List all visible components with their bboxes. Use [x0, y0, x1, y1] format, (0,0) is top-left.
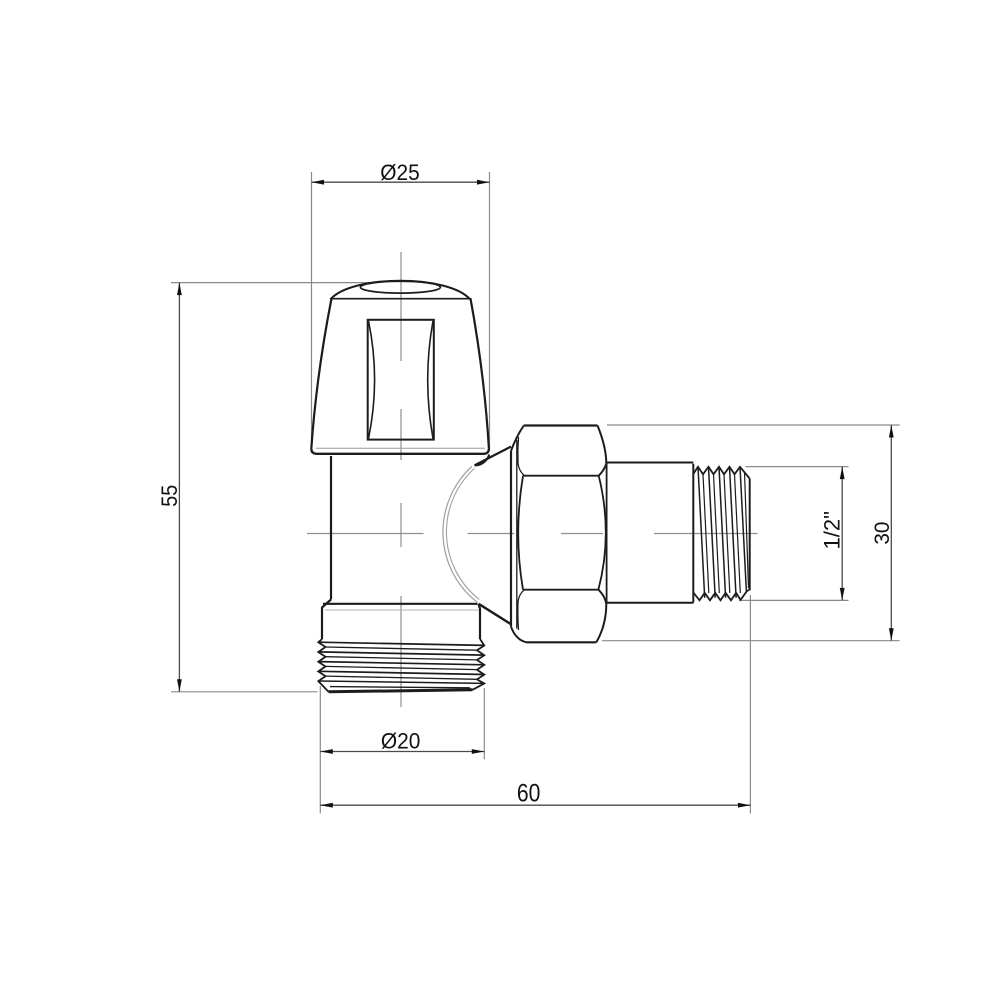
svg-text:30: 30 [871, 522, 894, 545]
svg-text:Ø20: Ø20 [381, 728, 421, 753]
svg-text:60: 60 [517, 779, 541, 807]
svg-text:Ø25: Ø25 [380, 160, 420, 185]
svg-text:1/2": 1/2" [819, 511, 844, 550]
svg-text:55: 55 [157, 485, 182, 507]
